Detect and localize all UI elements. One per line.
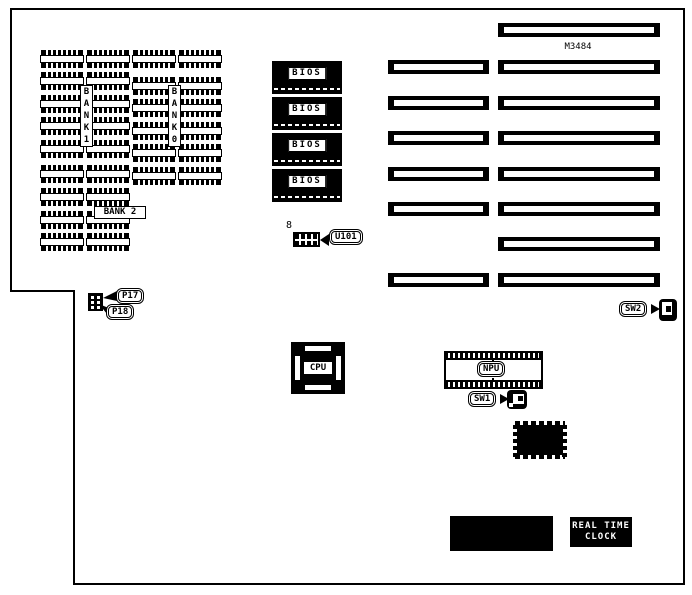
memory-chip <box>40 95 84 113</box>
chip-pins-bottom <box>133 63 175 68</box>
sw2-switch-dot <box>666 306 671 312</box>
memory-chip <box>178 50 222 68</box>
memory-chip <box>86 50 130 68</box>
chip-pins-bottom <box>41 246 83 251</box>
sw2-window <box>662 302 672 315</box>
chip-body <box>40 170 84 178</box>
cpu-corner <box>292 343 305 356</box>
sw2-component <box>659 299 677 321</box>
chip-pins-bottom <box>133 180 175 185</box>
memory-chip <box>178 99 222 117</box>
sw1-tag-text: SW1 <box>470 393 494 405</box>
npu-socket: NPU <box>444 351 543 389</box>
p18-tag-text: P18 <box>108 306 132 318</box>
expansion-slot <box>388 202 489 216</box>
chip-body <box>132 55 176 63</box>
sw2-tag: SW2 <box>619 301 647 317</box>
expansion-slot <box>498 23 660 37</box>
memory-chip <box>40 140 84 158</box>
expansion-slot <box>388 167 489 181</box>
bios-notch-line <box>274 196 340 198</box>
u101-tag-text: U101 <box>331 231 361 243</box>
memory-chip <box>178 77 222 95</box>
sw1-switch-dot <box>518 396 523 401</box>
chip-body <box>40 100 84 108</box>
expansion-slot <box>498 237 660 251</box>
chip-pins-left <box>513 423 518 457</box>
memory-chip <box>178 167 222 185</box>
real-time-clock: REAL TIME CLOCK <box>570 517 632 547</box>
u101-component <box>293 232 320 247</box>
chip-pins-bottom <box>41 178 83 183</box>
chip-pins-bottom <box>179 135 221 140</box>
sw1-window <box>513 394 524 404</box>
bank0-label: B A N K 0 <box>168 85 181 147</box>
slot-opening <box>504 100 654 106</box>
chip-pins-bottom <box>179 112 221 117</box>
npu-tag: NPU <box>477 361 505 377</box>
memory-chip <box>86 233 130 251</box>
chip-body <box>86 193 130 201</box>
npu-link-line <box>492 378 494 382</box>
chip-pins-bottom <box>41 130 83 135</box>
chip-pins-bottom <box>87 178 129 183</box>
p18-tag: P18 <box>106 304 134 320</box>
sw1-component <box>507 390 527 409</box>
bios-label: BIOS <box>288 67 326 80</box>
chip-pins-bottom <box>87 108 129 113</box>
chip-body <box>40 193 84 201</box>
rtc-label-line1: REAL TIME <box>570 521 632 532</box>
expansion-slot <box>388 131 489 145</box>
cpu-corner <box>331 380 344 393</box>
memory-chip <box>40 211 84 229</box>
memory-chip <box>40 165 84 183</box>
bios-label: BIOS <box>288 103 326 116</box>
bios-label: BIOS <box>288 139 326 152</box>
memory-chip <box>40 117 84 135</box>
chip-pins-bottom <box>41 201 83 206</box>
slot-opening <box>394 64 483 70</box>
chip-pins-bottom <box>41 153 83 158</box>
chip-pins-bottom <box>87 63 129 68</box>
bios-chip: BIOS <box>272 61 342 94</box>
expansion-slot <box>498 167 660 181</box>
slot-opening <box>394 135 483 141</box>
bank2-label: BANK 2 <box>94 206 146 219</box>
motherboard-diagram: B A N K 1 B A N K 0 BANK 2 8 U101 M3484 … <box>0 0 692 595</box>
p17-tag: P17 <box>116 288 144 304</box>
sw1-notch <box>509 403 513 407</box>
chip-body <box>40 145 84 153</box>
cpu-chip: CPU <box>291 342 345 394</box>
chip-body <box>132 172 176 180</box>
expansion-slot <box>498 60 660 74</box>
chip-pins-bottom <box>87 130 129 135</box>
npu-tag-text: NPU <box>479 363 503 375</box>
connector-pin-dots <box>91 296 94 299</box>
chip-pins-bottom <box>87 246 129 251</box>
memory-chip <box>132 50 176 68</box>
part-number-label: M3484 <box>556 42 600 52</box>
slot-opening <box>504 171 654 177</box>
chip-body <box>86 55 130 63</box>
chip-body <box>517 425 563 455</box>
memory-chip <box>86 165 130 183</box>
expansion-slot <box>498 131 660 145</box>
slot-opening <box>394 100 483 106</box>
memory-chip <box>40 72 84 90</box>
expansion-slot <box>388 96 489 110</box>
chip-pins-bottom <box>87 224 129 229</box>
chip-pins-top <box>515 421 565 426</box>
cpu-label: CPU <box>303 361 333 375</box>
slot-opening <box>504 27 654 33</box>
chip-body <box>86 170 130 178</box>
slot-opening <box>504 64 654 70</box>
u101-pin-grid <box>295 234 318 245</box>
chip-pins-bottom <box>179 63 221 68</box>
chip-body <box>178 55 222 63</box>
chip-pins-bottom <box>41 108 83 113</box>
memory-chip <box>178 144 222 162</box>
p17-tag-text: P17 <box>118 290 142 302</box>
expansion-slot <box>498 202 660 216</box>
chip-body <box>178 127 222 135</box>
chip-body <box>40 55 84 63</box>
chip-body <box>40 238 84 246</box>
slot-opening <box>394 171 483 177</box>
bios-chip: BIOS <box>272 169 342 202</box>
chip-pins-bottom <box>515 454 565 459</box>
chip-body <box>40 122 84 130</box>
sw1-tag: SW1 <box>468 391 496 407</box>
bios-notch-line <box>274 160 340 162</box>
chip-pins-bottom <box>179 90 221 95</box>
bank1-label: B A N K 1 <box>80 85 93 147</box>
slot-opening <box>504 135 654 141</box>
chip-pins-bottom <box>87 153 129 158</box>
bios-label: BIOS <box>288 175 326 188</box>
memory-chip <box>178 122 222 140</box>
component-block <box>450 516 553 551</box>
chip-pins-bottom <box>41 224 83 229</box>
u101-tag: U101 <box>329 229 363 245</box>
bios-chip: BIOS <box>272 97 342 130</box>
chip-pins-bottom <box>179 180 221 185</box>
slot-opening <box>504 206 654 212</box>
chip-body <box>40 77 84 85</box>
slot-opening <box>504 241 654 247</box>
bios-chip: BIOS <box>272 133 342 166</box>
u101-pin-count-label: 8 <box>286 221 292 231</box>
chip-pins-bottom <box>133 157 175 162</box>
chip-pins-bottom <box>41 63 83 68</box>
chip-pins-bottom <box>41 85 83 90</box>
cpu-corner <box>331 343 344 356</box>
expansion-slot <box>498 273 660 287</box>
bios-notch-line <box>274 124 340 126</box>
chip-body <box>178 104 222 112</box>
expansion-slot <box>498 96 660 110</box>
chip-pins-bottom <box>179 157 221 162</box>
bios-notch-line <box>274 88 340 90</box>
chip-body <box>86 238 130 246</box>
cpu-corner <box>292 380 305 393</box>
slot-opening <box>394 206 483 212</box>
memory-chip <box>40 233 84 251</box>
chip-body <box>178 172 222 180</box>
rtc-label-line2: CLOCK <box>570 532 632 543</box>
memory-chip <box>40 188 84 206</box>
p17-p18-connector <box>88 293 103 311</box>
surface-mount-chip <box>513 421 567 459</box>
sw2-tag-text: SW2 <box>621 303 645 315</box>
slot-opening <box>394 277 483 283</box>
expansion-slot <box>388 60 489 74</box>
chip-pins-right <box>562 423 567 457</box>
expansion-slot <box>388 273 489 287</box>
slot-opening <box>504 277 654 283</box>
chip-body <box>178 82 222 90</box>
u101-pointer-arrow <box>320 234 329 246</box>
chip-body <box>40 216 84 224</box>
chip-body <box>178 149 222 157</box>
memory-chip <box>132 167 176 185</box>
chip-pins-bottom <box>87 85 129 90</box>
chip-body <box>132 149 176 157</box>
memory-chip <box>40 50 84 68</box>
npu-pins-bottom <box>448 382 539 387</box>
memory-chip <box>86 188 130 206</box>
p17-pointer-arrow <box>103 291 117 301</box>
